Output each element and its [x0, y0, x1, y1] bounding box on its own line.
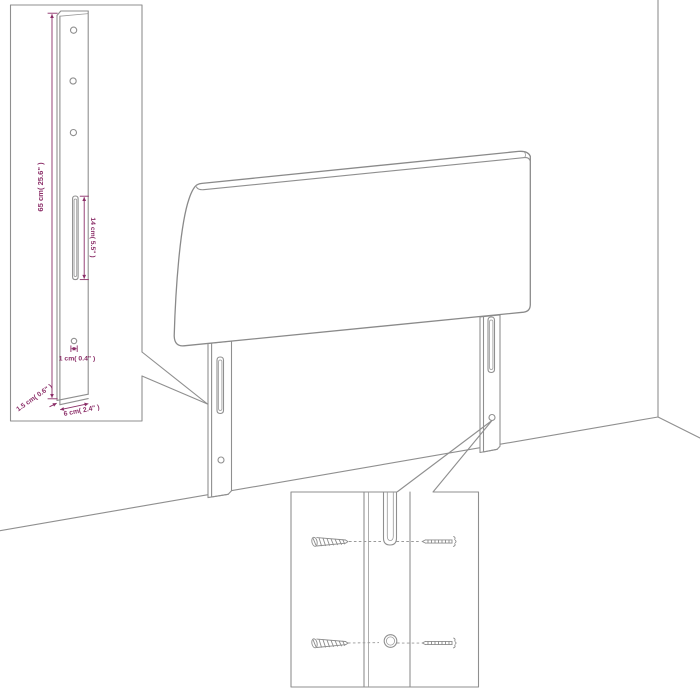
headboard-left-leg — [208, 341, 232, 498]
dim-hole-label: 1 cm( 0.4" ) — [59, 356, 95, 363]
mounting-callout-line-left — [397, 421, 492, 493]
dim-height-label: 65 cm( 25.6" ) — [36, 162, 45, 212]
assembly-diagram: 65 cm( 25.6" ) 14 cm( 5.5" ) 1 cm( 0.4" … — [0, 0, 700, 700]
dim-slot-label: 14 cm( 5.5" ) — [89, 217, 96, 257]
leg-detail-callout-line-lower — [142, 376, 208, 404]
headboard-legs — [208, 315, 500, 498]
leg-detail-callout-line-upper — [142, 352, 208, 404]
floor-line-right — [658, 417, 700, 439]
mounting-detail-box — [291, 492, 479, 687]
mounting-callout-line-right — [433, 421, 492, 493]
panel-outline — [174, 151, 530, 346]
leg-detail-inset: 65 cm( 25.6" ) 14 cm( 5.5" ) 1 cm( 0.4" … — [11, 5, 208, 421]
mounting-detail-inset — [291, 421, 492, 688]
headboard-panel — [174, 151, 530, 346]
